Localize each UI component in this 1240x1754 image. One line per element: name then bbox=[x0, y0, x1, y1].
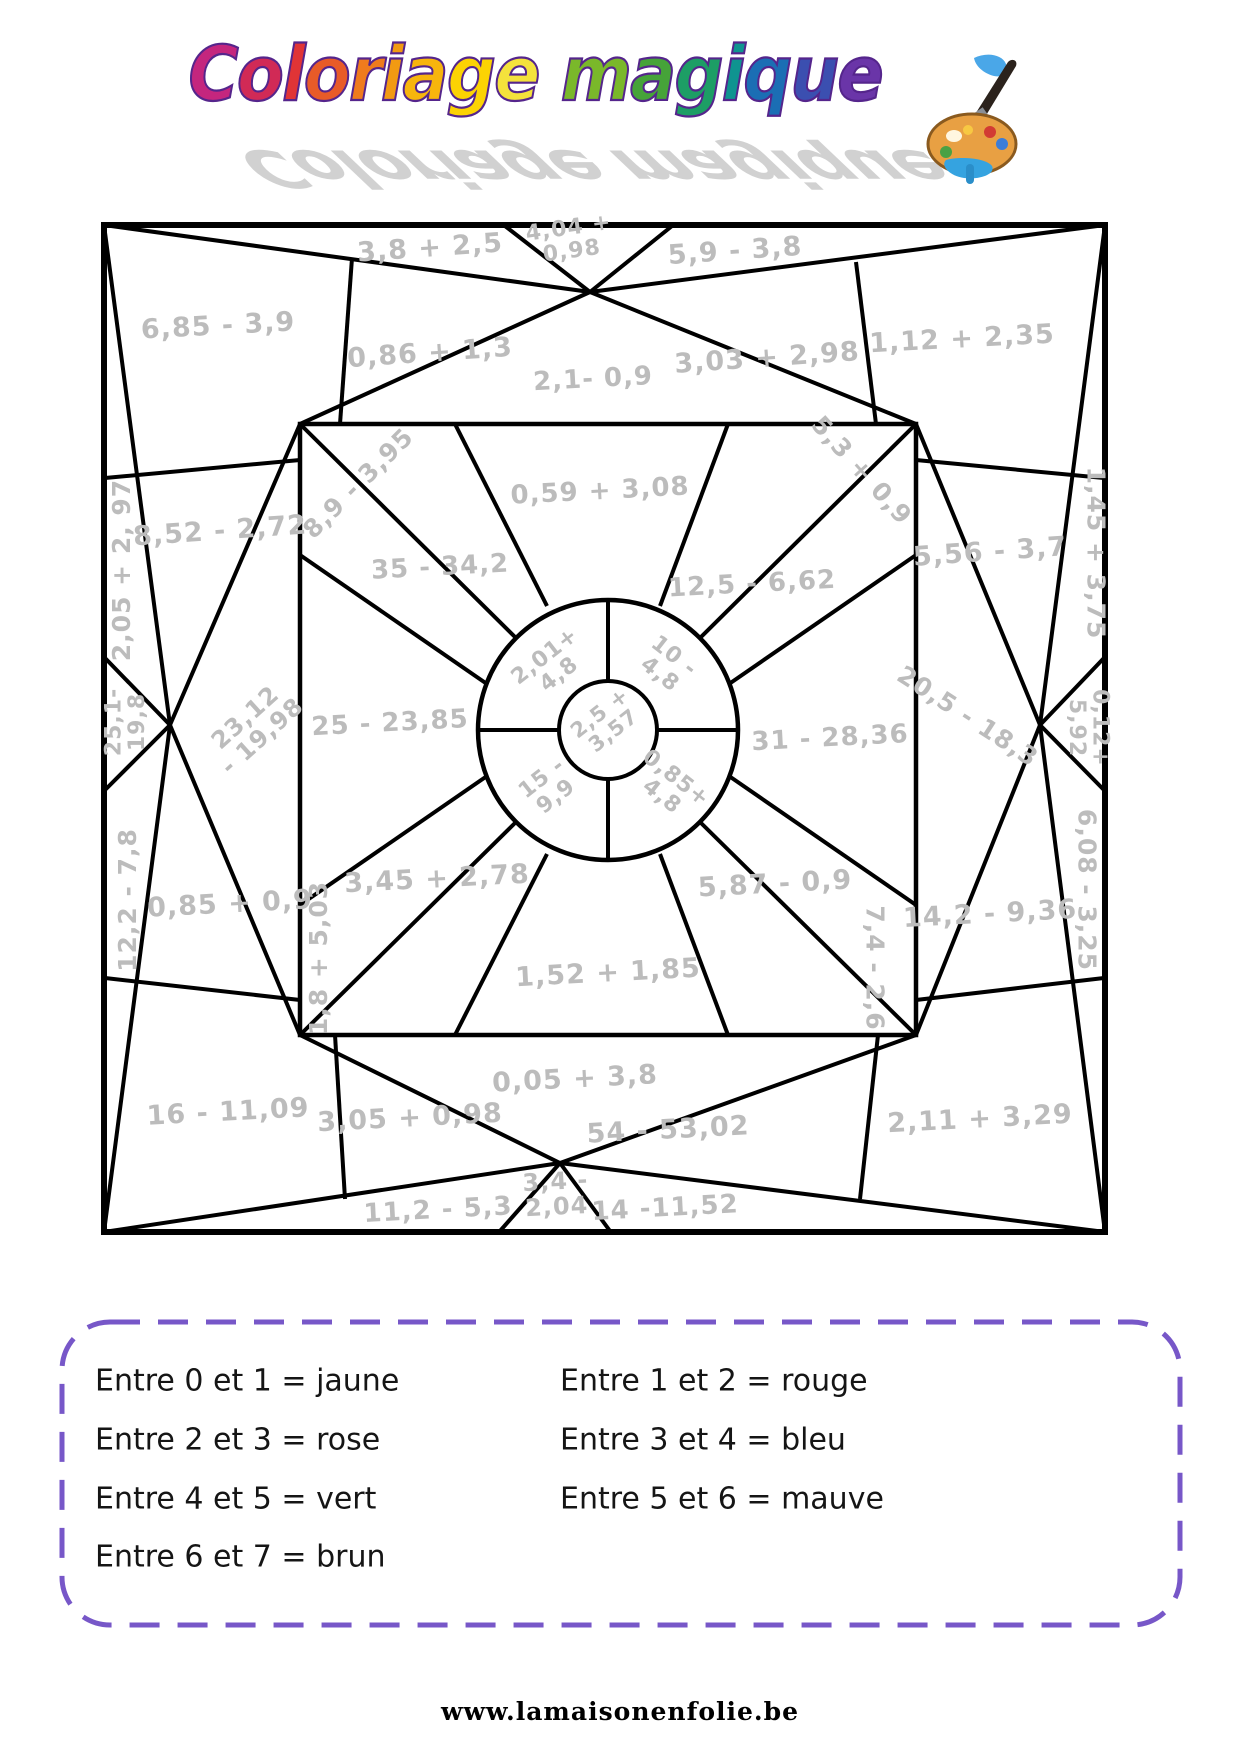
worksheet-page: 3,8 + 2,54,04 +0,985,9 - 3,86,85 - 3,90,… bbox=[0, 0, 1240, 1754]
legend-rule: Entre 5 et 6 = mauve bbox=[560, 1482, 884, 1517]
legend-rule: Entre 2 et 3 = rose bbox=[95, 1423, 380, 1458]
title-letter: i bbox=[722, 29, 744, 118]
figure-label-expression: 54 - 53,02 bbox=[586, 1110, 750, 1149]
title-letter: m bbox=[561, 29, 630, 118]
figure-label-expression: 16 - 11,09 bbox=[146, 1092, 310, 1131]
title-letter: g bbox=[675, 29, 722, 118]
legend-rule: Entre 0 et 1 = jaune bbox=[95, 1364, 399, 1399]
figure-label-expression: 3,8 + 2,5 bbox=[356, 227, 504, 268]
figure-label-expression: 5,3 + 0,9 bbox=[806, 410, 919, 530]
page-title: Coloriage magique bbox=[189, 36, 882, 112]
figure-label-expression: 12,5 - 6,62 bbox=[667, 565, 837, 604]
title-letter: r bbox=[349, 29, 381, 118]
figure-label-expression: 0,86 + 1,3 bbox=[346, 332, 514, 374]
figure-label-expression: 1,8 + 5,03 bbox=[304, 881, 333, 1035]
title-letter: e bbox=[837, 29, 882, 118]
figure-label-expression: 5,56 - 3,7 bbox=[912, 531, 1068, 573]
figure-label-expression: 3,45 + 2,78 bbox=[344, 859, 531, 900]
figure-label-expression: 1,52 + 1,85 bbox=[515, 953, 702, 994]
figure-label-expression: 35 - 34,2 bbox=[370, 549, 510, 586]
title-letter: i bbox=[381, 29, 403, 118]
figure-line bbox=[860, 1035, 878, 1199]
title-letter: e bbox=[494, 29, 539, 118]
figure-label-expression: 2,1- 0,9 bbox=[532, 361, 653, 397]
figure-label-expression: 1,45 + 3,75 bbox=[1081, 467, 1110, 640]
title-letter bbox=[539, 29, 561, 118]
title-letter: C bbox=[189, 29, 237, 118]
figure-label-expression: 31 - 28,36 bbox=[751, 719, 910, 757]
figure-label-expression: 5,87 - 0,9 bbox=[697, 864, 853, 903]
legend-rule: Entre 6 et 7 = brun bbox=[95, 1540, 385, 1575]
figure-label-expression: 23,12- 19,98 bbox=[198, 673, 309, 780]
legend-rule: Entre 3 et 4 = bleu bbox=[560, 1423, 846, 1458]
figure-label-expression: 0,85 + 0,9 bbox=[146, 884, 313, 924]
figure-label-expression: 6,08 - 3,25 bbox=[1072, 809, 1101, 971]
paint-palette-icon bbox=[916, 52, 1028, 188]
figure-label-expression: 0,05 + 3,8 bbox=[491, 1059, 658, 1099]
figure-label-expression: 3,05 + 0,98 bbox=[317, 1098, 504, 1139]
legend-rule: Entre 4 et 5 = vert bbox=[95, 1482, 376, 1517]
figure-label-expression: 7,4 - 2,6 bbox=[860, 905, 889, 1030]
figure-line bbox=[300, 424, 516, 638]
figure-label-expression: 2,5 +3,57 bbox=[566, 683, 647, 761]
figure-label-expression: 0,85+4,8 bbox=[623, 745, 714, 831]
figure-label-expression: 25 - 23,85 bbox=[311, 704, 470, 742]
title-letter: a bbox=[630, 29, 674, 118]
figure-label-expression: 3,4 -2,04 bbox=[522, 1166, 591, 1223]
title-letter: o bbox=[304, 29, 349, 118]
figure-label-expression: 0,59 + 3,08 bbox=[510, 471, 691, 510]
legend-rule: Entre 1 et 2 = rouge bbox=[560, 1364, 868, 1399]
title-letter: l bbox=[282, 29, 304, 118]
figure-label-expression: 4,04 +0,98 bbox=[524, 210, 616, 270]
title-letter: a bbox=[403, 29, 447, 118]
figure-label-expression: 25,1-19,8 bbox=[102, 688, 150, 756]
figure-label-expression: 12,2 - 7,8 bbox=[113, 828, 142, 972]
figure-label-expression: 0,12+5,92 bbox=[1064, 689, 1112, 767]
figure-line bbox=[700, 424, 916, 638]
title-letter: q bbox=[743, 29, 790, 118]
figure-label-expression: 14 -11,52 bbox=[591, 1189, 740, 1227]
figure-label-expression: 6,85 - 3,9 bbox=[140, 306, 296, 345]
title-letter: g bbox=[447, 29, 494, 118]
figure-label-expression: 3,03 + 2,98 bbox=[673, 336, 860, 380]
figure-label-expression: 2,05 + 2, 97 bbox=[107, 479, 136, 661]
website-url: www.lamaisonenfolie.be bbox=[0, 1697, 1240, 1726]
figure-label-expression: 10 -4,8 bbox=[632, 631, 702, 701]
figure-label-expression: 14,2 - 9,36 bbox=[902, 894, 1078, 934]
title-letter: o bbox=[237, 29, 282, 118]
title-letter: u bbox=[791, 29, 838, 118]
figure-label-expression: 2,11 + 3,29 bbox=[887, 1099, 1074, 1140]
figure-label-expression: 11,2 - 5,3 bbox=[363, 1191, 513, 1229]
figure-label-expression: 1,12 + 2,35 bbox=[869, 319, 1056, 360]
figure-label-expression: 8,52 - 2,72 bbox=[132, 509, 308, 552]
